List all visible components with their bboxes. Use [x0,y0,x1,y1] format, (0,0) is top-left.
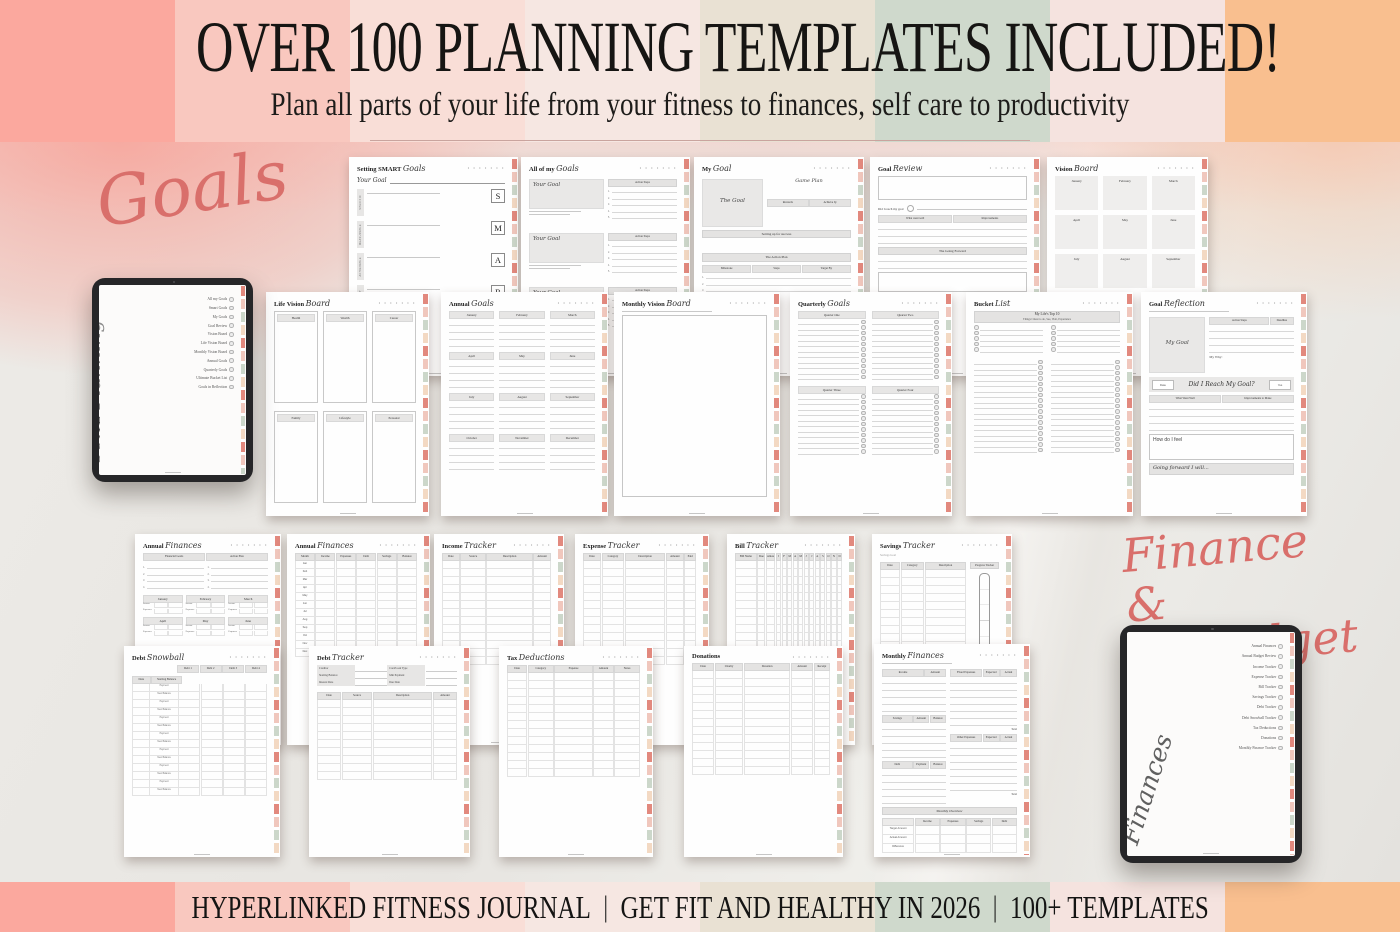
table-cell [625,585,665,593]
table-cell [397,601,417,609]
line [612,248,677,254]
table-cell [791,735,813,743]
table-cell [342,700,373,708]
table-cell [507,681,527,689]
checkbox-dot [1115,376,1120,381]
table-row [692,687,830,695]
table-cell [791,767,813,775]
checkbox-dot [1115,442,1120,447]
goal-box-column: Your Goal [529,176,604,219]
line-number: 1. [143,566,145,569]
hyperlink-dot [229,297,234,302]
page-body: HealthWealthCareerFamilyLifestylePersona… [274,311,416,503]
numbered-line: 3. [208,577,269,583]
table-cell [342,748,373,756]
goal-line [499,333,544,340]
smart-criteria-text: Measurable [359,224,362,245]
page-header: Life VisionBoard• • • • • • • [274,299,416,308]
table-cell [528,745,554,753]
goal-line [550,367,595,374]
date-cell [132,780,150,788]
hyperlink-dots: • • • • • • • [730,300,767,305]
hyperlink-dot [1278,644,1283,649]
goal-line [550,360,595,367]
table-cell [356,617,376,625]
table-cell [666,601,684,609]
goal-line [499,449,544,456]
checklist-column [974,325,1043,353]
table-cell [735,593,757,601]
numbered-line: 3. [143,577,204,583]
line-number: 3. [143,579,145,582]
table-cell [757,577,765,585]
table-cell [793,609,798,617]
table-cell [880,602,900,610]
page-title-main: My [702,166,711,173]
table-cell [715,743,743,751]
table-cell [614,753,640,761]
value-cell [178,716,200,724]
table-cell [837,569,842,577]
value-cell [201,756,223,764]
column-header: Rewards [767,199,809,207]
goal-line [449,333,494,340]
finance-row: Income [228,603,268,608]
goal-line [449,319,494,326]
hyperlink-dot [229,323,234,328]
ruled-line [950,691,1017,698]
numbered-line: 1. [608,188,677,194]
table-cell [831,609,836,617]
quarter-cell: Quarter Two [872,311,940,380]
table-cell [735,617,757,625]
quarterly-goals-template-page: QuarterlyGoals• • • • • • •Quarter OneQu… [790,292,952,516]
table-cell [507,689,527,697]
table-cell [528,769,554,777]
column-header: F [782,553,787,561]
table-cell [735,585,757,593]
table-cell [715,759,743,767]
hyperlink-item: Bill Tracker [1258,685,1283,690]
table-cell [528,705,554,713]
page-title-script: List [995,299,1010,308]
value-cell [223,684,245,692]
checkbox-dot [861,375,866,380]
page-title-main: Monthly Vision [622,301,665,308]
column-header: Amount [913,715,929,723]
table-cell [915,826,940,835]
section-band: The Going Forward [878,247,1027,255]
hyperlink-label: Donations [1261,736,1276,740]
table-row [692,735,830,743]
page-title-main: Goal [1149,301,1162,308]
table-cell [715,735,743,743]
table-cell [787,593,792,601]
snowball-row: New Balance [132,772,267,780]
table-cell [880,594,900,602]
hyperlink-dots: • • • • • • • [231,542,268,547]
hyperlink-dots: • • • • • • • [962,542,999,547]
column-header: Payment [913,761,929,769]
table-row [507,753,640,761]
category-label: Wealth [326,314,364,322]
table-row [317,740,457,748]
table-row [507,689,640,697]
page-title-script: Goal [713,164,732,173]
table-row [507,769,640,777]
checkbox-dot [861,444,866,449]
table-cell [814,727,830,735]
hyperlink-item: Debt Tracker [1257,705,1283,710]
month-label: May [499,352,544,360]
value-cell [245,732,267,740]
table-cell [373,740,433,748]
side-tabs [837,648,842,855]
page-title: AnnualGoals [449,299,494,308]
table-cell [507,713,527,721]
checkbox-dot [934,394,939,399]
page-title: DebtTracker [317,653,364,662]
page-title-main: Monthly [882,653,906,660]
table-cell [602,625,625,633]
vision-month-cell: August [1103,254,1146,288]
month-goal-cell: September [550,393,595,429]
table-cell [804,617,809,625]
section-band: Monthly Overview [882,807,1017,815]
column-header: Debt [992,818,1017,826]
month-goal-cell: March [550,311,595,347]
month-goal-cell: June [550,352,595,388]
table-cell [901,570,925,578]
table-cell [397,617,417,625]
table-cell [744,687,791,695]
goal-line [499,456,544,463]
table-cell [798,561,803,569]
page-header: All of myGoals• • • • • • • [529,164,677,173]
page-body: My GoalAction StepsDeadlineMy Why:DateDi… [1149,311,1294,475]
table-cell [442,617,460,625]
table-cell [356,609,376,617]
cell [196,603,210,608]
page-header: TaxDeductions• • • • • • • [507,653,640,662]
ruled-line [878,230,1027,237]
checkbox-dot [1038,415,1043,420]
table-cell [809,625,814,633]
table-cell [507,769,527,777]
table-row [507,729,640,737]
hyperlink-dots: • • • • • • • [1257,300,1294,305]
table-cell [798,577,803,585]
column-header: Donation [744,663,791,671]
monthly-vision-board-template-page: Monthly VisionBoard• • • • • • • [614,292,780,516]
hyperlink-item: Goal Review [208,323,234,328]
column-header: Category [528,665,554,673]
table-cell [342,740,373,748]
meta-line [529,268,570,269]
table-cell [826,585,831,593]
table-cell [820,593,825,601]
table-cell [528,689,554,697]
table-cell [925,586,967,594]
row-label: Income [186,603,196,608]
table-cell [793,617,798,625]
goal-line [449,374,494,381]
line [612,268,677,274]
checkbox-dot [1115,365,1120,370]
content-box: How do I feel [1149,434,1294,460]
table-cell [486,601,532,609]
hyperlink-label: My Goals [213,315,228,319]
table-cell [583,585,601,593]
table-cell [315,577,335,585]
table-cell [397,577,417,585]
checkbox-dot [934,342,939,347]
table-cell [820,625,825,633]
table-cell [433,716,457,724]
table-cell [766,561,776,569]
content-box: The Goal [702,179,763,227]
checkbox-dot [1038,448,1043,453]
checkbox-dot [934,325,939,330]
category-label: Lifestyle [326,414,364,422]
column-header: Date [692,663,714,671]
month-cell: MarchIncomeExpenses [228,595,268,614]
goal-line [550,401,595,408]
hyperlink-item: Smart Goals [209,306,234,311]
column-header: Balance [930,761,946,769]
column-headers: IncomeAmount [882,669,946,677]
page-title-script: Reflection [1164,299,1205,308]
ruled-line [950,742,1017,749]
page-footer-mark [944,854,960,855]
date-cell [132,692,150,700]
table-cell [831,601,836,609]
question-text [367,193,440,194]
table-cell [377,577,397,585]
table-cell [528,681,554,689]
table-row: Actual Amount [882,835,1017,844]
table-cell [373,764,433,772]
month-band: January [143,595,183,603]
value-cell [178,780,200,788]
table-cell [433,700,457,708]
tax-deductions-template-page: TaxDeductions• • • • • • •DateCategoryEx… [499,646,653,857]
goal-line [449,326,494,333]
cell [211,603,225,608]
side-tabs [241,286,246,474]
goal-line [550,422,595,429]
cell [239,609,253,614]
column-header: Milestone [702,265,751,273]
line-number: 3. [608,311,610,314]
table-cell [744,671,791,679]
table-cell [533,625,551,633]
side-tabs [274,648,279,855]
numbered-line: 3. [608,201,677,207]
table-row [442,593,551,601]
goal-planning-label: GOALPlanning [99,320,105,465]
page-footer-mark [1042,513,1058,514]
table-cell [826,569,831,577]
table-cell [583,593,601,601]
table-cell [715,695,743,703]
checkbox-dot [1038,398,1043,403]
checkbox-dot [861,320,866,325]
payment-label-cell: New Balance [150,772,178,780]
cell [154,609,168,614]
hyperlink-list: Annual FinancesAnnual Budget ReviewIncom… [1239,644,1283,750]
table-cell [460,593,486,601]
table-cell: Difference [882,844,914,853]
value-cell [178,748,200,756]
smart-letter: M [491,221,505,235]
ruled-line [950,705,1017,712]
table-cell [782,585,787,593]
table-cell [791,727,813,735]
row-label: Expenses [143,609,153,614]
page-title: VisionBoard [1055,164,1098,173]
checkbox-dot [1115,404,1120,409]
table-cell [317,748,341,756]
month-label: June [550,352,595,360]
table-cell [460,577,486,585]
hyperlink-label: Ultimate Bucket List [196,376,227,380]
goal-block: Your GoalAction Steps1.2.3.4.5. [529,230,677,273]
column-header: S [820,553,825,561]
table-row [583,593,696,601]
snowball-row: Payment [132,780,267,788]
page-body: Financial GoalsAction Plan1.2.3.4.1.2.3.… [143,553,268,636]
ruled-line [878,262,1027,269]
column-header: Description [625,553,665,561]
column-header: Amount [766,553,776,561]
checkbox-dot [934,422,939,427]
line-number: 1. [608,298,610,301]
side-tabs [1301,294,1306,514]
table-cell [809,609,814,617]
table-row [735,609,842,617]
line-number: 4. [208,586,210,589]
column-headers: DateCategoryDescription [880,562,966,570]
checkbox-dot [1038,442,1043,447]
goal-line [550,449,595,456]
content-box [878,176,1027,200]
page-footer-mark [517,513,533,514]
table-cell [831,633,836,641]
table-cell [614,713,640,721]
column-header: D [837,553,842,561]
checkbox-dot [1115,371,1120,376]
hyperlink-dots: • • • • • • • [420,654,457,659]
table-cell [715,687,743,695]
page-body: IncomeAmountSavingsAmountBalanceDebtPaym… [882,663,1017,853]
checkbox-dot [1051,331,1056,336]
hyperlink-label: Debt Snowball Tracker [1242,716,1276,720]
month-label: February [499,311,544,319]
table-cell [820,617,825,625]
right-column: Fixed ExpensesExpectedActualTotalOther E… [950,666,1017,803]
goal-line [499,463,544,470]
checkbox-dot [861,369,866,374]
table-cell [315,633,335,641]
column-header: Savings [882,715,913,723]
category-label: Personal [375,414,413,422]
checkbox-dot [934,369,939,374]
ruled-line [950,784,1017,791]
page-title-main: Setting SMART [357,166,401,173]
table-cell [776,609,781,617]
column-header: Action Plan [206,553,268,561]
page-body: JanuaryFebruaryMarchAprilMayJuneJulyAugu… [1055,176,1195,288]
line [980,346,1043,353]
row-label: Expenses [143,631,153,636]
line-number: 1. [208,566,210,569]
date-cell [132,772,150,780]
hyperlink-dots: • • • • • • • [805,542,842,547]
column-header: Expected [983,734,1000,742]
table-cell [793,601,798,609]
column-header: Paid [684,553,696,561]
column-headers: DateCategoryDescriptionAmountPaid [583,553,696,561]
table-cell [831,617,836,625]
page-header: Donations• • • • • • • [692,653,830,660]
checkbox-dot [861,394,866,399]
table-cell [583,625,601,633]
hyperlink-dots: • • • • • • • [230,654,267,659]
column-header: A [815,553,820,561]
table-cell [787,609,792,617]
table-cell [820,577,825,585]
checkbox-dot [974,342,979,347]
payment-label-cell: Payment [150,780,178,788]
table-cell [666,657,684,665]
month-finance-grid: JanuaryIncomeExpensesFebruaryIncomeExpen… [143,595,268,636]
table-cell [614,745,640,753]
table-cell [507,753,527,761]
column-header: Month [295,553,315,561]
date-cell [132,732,150,740]
spacer [702,238,851,250]
grid-outline: HealthWealthCareer [274,311,416,403]
spacer [317,686,457,689]
two-column-area: 1.2.3.4.1.2.3.4. [143,563,268,589]
value-cell [178,740,200,748]
column-header: Date [507,665,527,673]
table-cell [486,569,532,577]
snowball-row: New Balance [132,724,267,732]
table-cell [815,593,820,601]
table-cell [791,759,813,767]
hyperlink-dots: • • • • • • • [558,300,595,305]
table-cell [901,602,925,610]
line [211,577,268,583]
table-cell [776,593,781,601]
column-headers: DebtPaymentBalance [882,761,946,769]
cell [211,631,225,636]
value-cell [201,748,223,756]
line-number: 1. [702,276,704,279]
table-cell: Jan [295,561,315,569]
row-label: Expenses [186,631,196,636]
month-label: March [550,311,595,319]
table-row [507,721,640,729]
table-cell [766,577,776,585]
table-cell [791,695,813,703]
hyperlink-label: Smart Goals [209,306,227,310]
question-text [367,225,440,226]
goal-line [550,456,595,463]
table-cell [666,641,684,649]
